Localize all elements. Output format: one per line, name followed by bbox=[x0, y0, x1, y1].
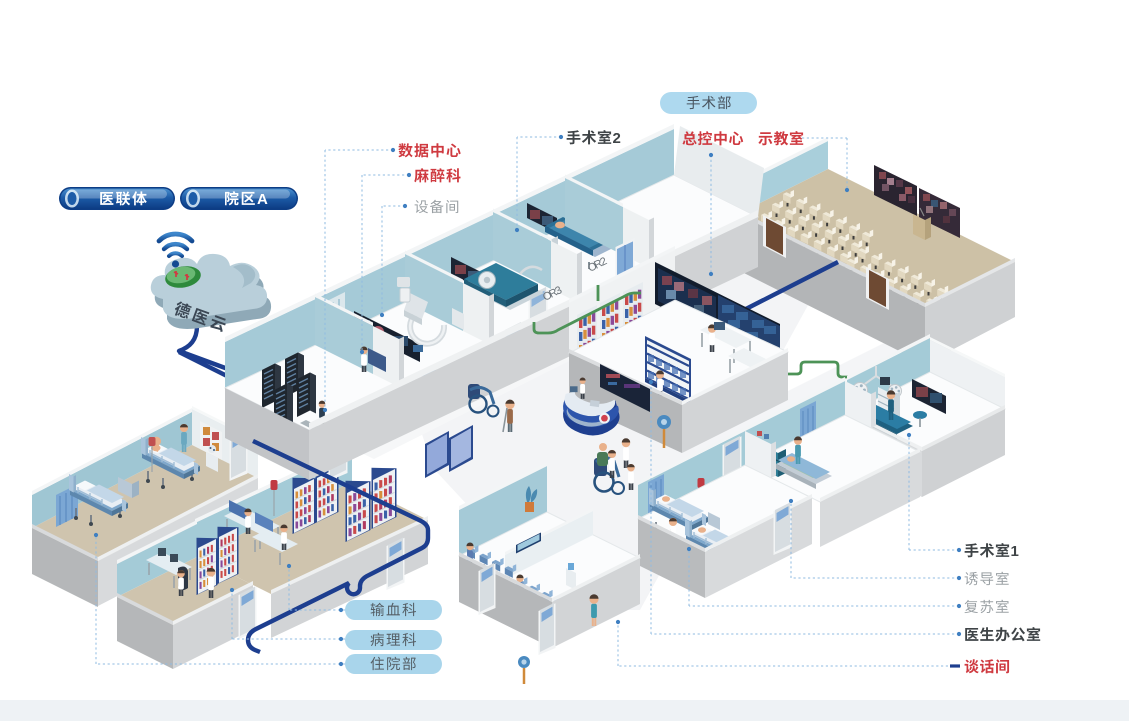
svg-text:1: 1 bbox=[1011, 543, 1019, 560]
svg-text:A: A bbox=[257, 191, 268, 208]
svg-text:2: 2 bbox=[613, 130, 621, 147]
